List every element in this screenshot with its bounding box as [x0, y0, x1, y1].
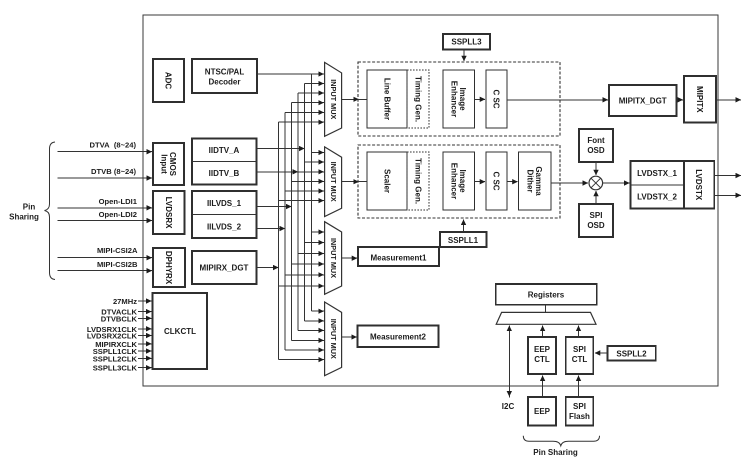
svg-text:C SC: C SC — [492, 171, 501, 190]
svg-text:INPUT MUX: INPUT MUX — [329, 319, 338, 359]
svg-text:DPHYRX: DPHYRX — [164, 251, 173, 285]
svg-text:Timing Gen.: Timing Gen. — [414, 158, 423, 204]
svg-text:LVDSTX_2: LVDSTX_2 — [637, 193, 677, 202]
svg-text:IILVDS_1: IILVDS_1 — [207, 199, 242, 208]
svg-text:Decoder: Decoder — [208, 78, 240, 87]
svg-text:OSD: OSD — [587, 146, 605, 155]
svg-text:SSPLL2CLK: SSPLL2CLK — [93, 354, 138, 363]
svg-text:Pin: Pin — [23, 203, 36, 212]
svg-text:Scaler: Scaler — [383, 169, 392, 193]
svg-text:Dither: Dither — [526, 169, 535, 192]
svg-text:SSPLL3CLK: SSPLL3CLK — [93, 364, 138, 373]
svg-text:NTSC/PAL: NTSC/PAL — [205, 68, 245, 77]
svg-text:EEP: EEP — [534, 407, 551, 416]
svg-text:Measurement2: Measurement2 — [370, 333, 427, 342]
svg-text:DTVBCLK: DTVBCLK — [101, 314, 138, 323]
svg-text:IIDTV_A: IIDTV_A — [209, 146, 240, 155]
svg-text:DTVA (8~24): DTVA (8~24) — [90, 141, 137, 150]
svg-text:MIPITX_DGT: MIPITX_DGT — [619, 96, 667, 105]
svg-text:Enhancer: Enhancer — [450, 163, 459, 199]
svg-text:INPUT MUX: INPUT MUX — [329, 162, 338, 202]
svg-text:CLKCTL: CLKCTL — [164, 327, 196, 336]
svg-text:SPI: SPI — [573, 402, 586, 411]
svg-text:I2C: I2C — [502, 402, 515, 411]
svg-text:27MHz: 27MHz — [113, 297, 137, 306]
svg-text:OSD: OSD — [587, 221, 605, 230]
svg-text:SSPLL3: SSPLL3 — [451, 38, 482, 47]
svg-text:MIPI-CSI2A: MIPI-CSI2A — [97, 246, 138, 255]
svg-text:C SC: C SC — [492, 89, 501, 108]
svg-text:Measurement1: Measurement1 — [370, 253, 427, 262]
svg-text:Sharing: Sharing — [9, 213, 39, 222]
svg-text:LVDSTX_1: LVDSTX_1 — [637, 169, 677, 178]
svg-text:MIPIRX_DGT: MIPIRX_DGT — [200, 264, 249, 273]
svg-text:Registers: Registers — [528, 291, 565, 300]
svg-text:Pin Sharing: Pin Sharing — [533, 448, 578, 457]
svg-text:Enhancer: Enhancer — [450, 81, 459, 117]
svg-text:LVDSRX: LVDSRX — [164, 197, 173, 230]
svg-text:SSPLL2: SSPLL2 — [616, 350, 647, 359]
svg-text:CTL: CTL — [534, 355, 550, 364]
svg-text:Font: Font — [587, 136, 605, 145]
svg-text:INPUT MUX: INPUT MUX — [329, 79, 338, 119]
svg-text:Input: Input — [160, 154, 169, 174]
svg-text:MIPITX: MIPITX — [695, 86, 704, 113]
svg-text:SSPLL1: SSPLL1 — [448, 236, 479, 245]
svg-text:ADC: ADC — [164, 72, 173, 90]
svg-text:DTVB (8~24): DTVB (8~24) — [91, 167, 136, 176]
svg-text:IILVDS_2: IILVDS_2 — [207, 223, 242, 232]
svg-text:SPI: SPI — [573, 345, 586, 354]
svg-text:MIPI-CSI2B: MIPI-CSI2B — [97, 260, 138, 269]
svg-text:Line Buffer: Line Buffer — [383, 78, 392, 120]
svg-text:Open-LDI1: Open-LDI1 — [99, 197, 138, 206]
svg-text:IIDTV_B: IIDTV_B — [209, 169, 240, 178]
svg-text:INPUT MUX: INPUT MUX — [329, 238, 338, 278]
svg-text:LVDSTX: LVDSTX — [694, 169, 703, 201]
svg-text:EEP: EEP — [534, 345, 551, 354]
svg-text:CTL: CTL — [572, 355, 588, 364]
svg-text:Open-LDI2: Open-LDI2 — [99, 210, 137, 219]
svg-text:Timing Gen.: Timing Gen. — [414, 76, 423, 122]
svg-text:SPI: SPI — [590, 211, 603, 220]
svg-text:Flash: Flash — [569, 412, 590, 421]
